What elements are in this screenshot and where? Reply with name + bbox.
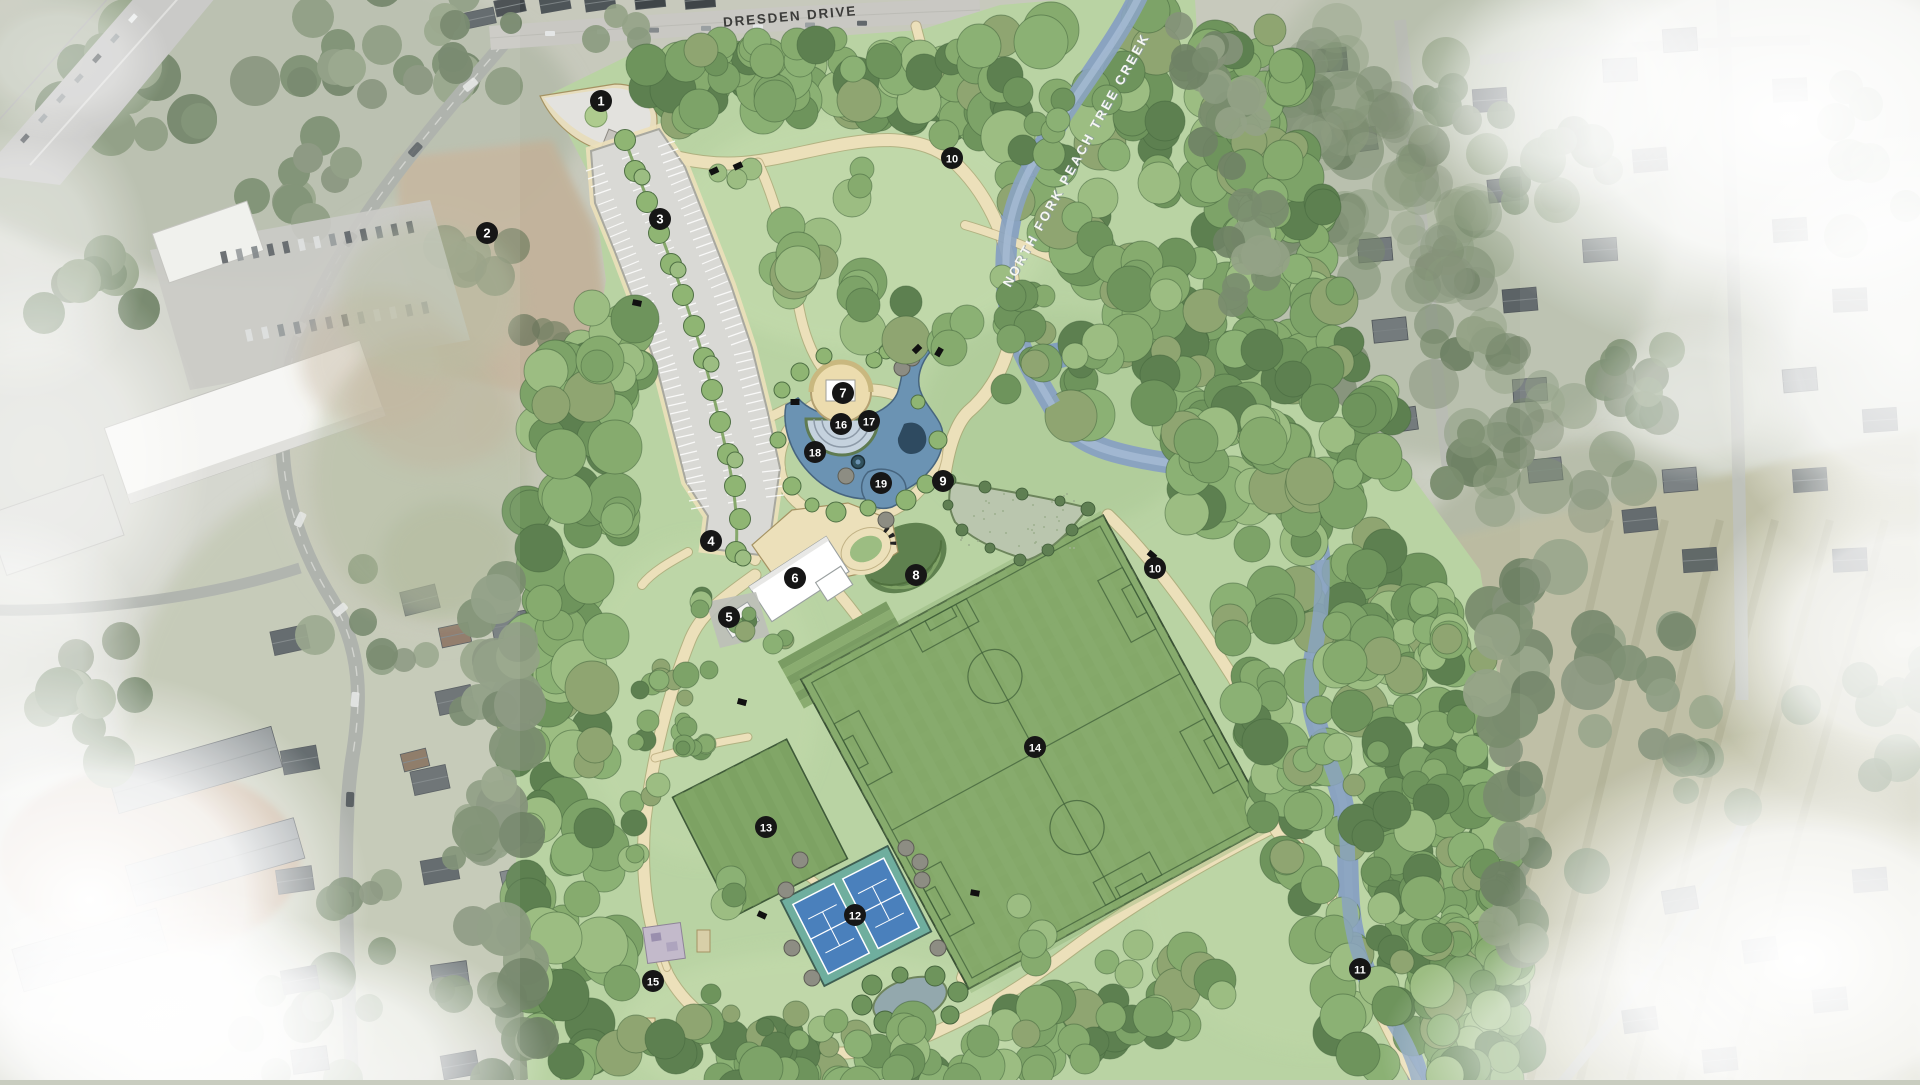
svg-text:15: 15 [647,977,659,989]
svg-text:10: 10 [946,154,958,166]
svg-text:5: 5 [725,610,732,625]
svg-text:8: 8 [912,568,919,583]
svg-text:13: 13 [760,823,772,835]
svg-text:11: 11 [1354,965,1366,977]
svg-text:19: 19 [875,479,887,491]
svg-text:2: 2 [483,226,490,241]
svg-text:3: 3 [656,212,663,227]
svg-text:1: 1 [597,94,604,109]
svg-text:14: 14 [1029,743,1042,755]
svg-text:10: 10 [1149,564,1161,576]
svg-text:18: 18 [809,448,821,460]
svg-text:4: 4 [707,534,715,549]
svg-text:6: 6 [791,571,798,586]
svg-text:9: 9 [939,474,946,489]
svg-text:16: 16 [835,420,847,432]
svg-text:17: 17 [863,417,875,429]
svg-text:12: 12 [849,911,861,923]
svg-text:7: 7 [839,386,846,401]
